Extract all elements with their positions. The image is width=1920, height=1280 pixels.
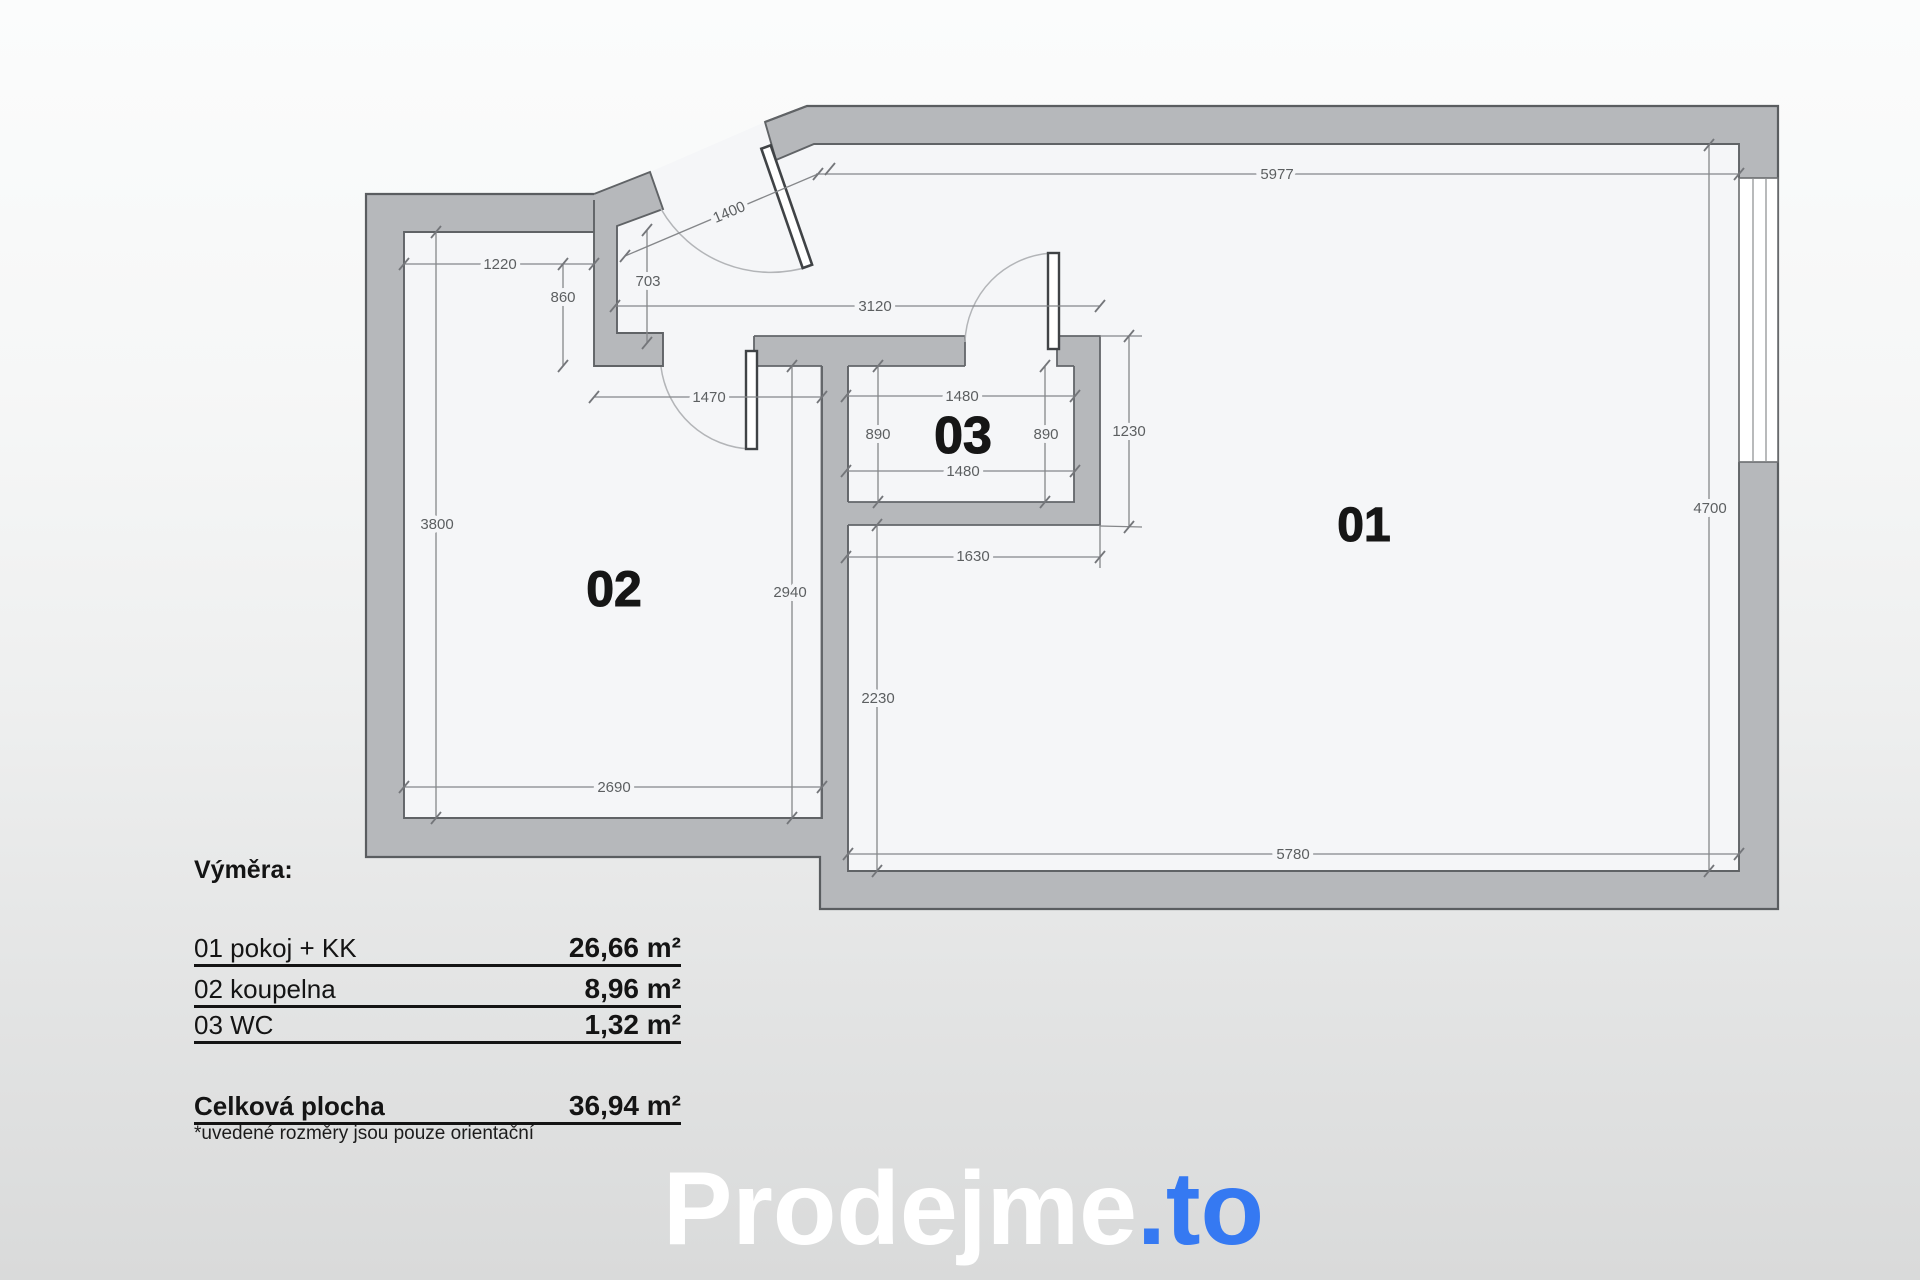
svg-text:890: 890: [1033, 426, 1058, 443]
svg-text:02: 02: [586, 561, 642, 617]
svg-text:1470: 1470: [692, 389, 725, 406]
svg-text:3800: 3800: [420, 516, 453, 533]
svg-text:890: 890: [865, 426, 890, 443]
svg-text:1480: 1480: [945, 388, 978, 405]
svg-text:1230: 1230: [1112, 423, 1145, 440]
svg-text:03: 03: [934, 407, 992, 465]
svg-text:860: 860: [550, 289, 575, 306]
svg-text:1630: 1630: [956, 548, 989, 565]
svg-text:2690: 2690: [597, 779, 630, 796]
svg-text:3120: 3120: [858, 298, 891, 315]
svg-text:1220: 1220: [483, 256, 516, 273]
svg-text:2230: 2230: [861, 690, 894, 707]
svg-text:5780: 5780: [1276, 846, 1309, 863]
svg-text:703: 703: [635, 273, 660, 290]
svg-text:1480: 1480: [946, 463, 979, 480]
svg-text:5977: 5977: [1260, 166, 1293, 183]
svg-text:2940: 2940: [773, 584, 806, 601]
svg-text:4700: 4700: [1693, 500, 1726, 517]
svg-text:01: 01: [1337, 499, 1390, 552]
